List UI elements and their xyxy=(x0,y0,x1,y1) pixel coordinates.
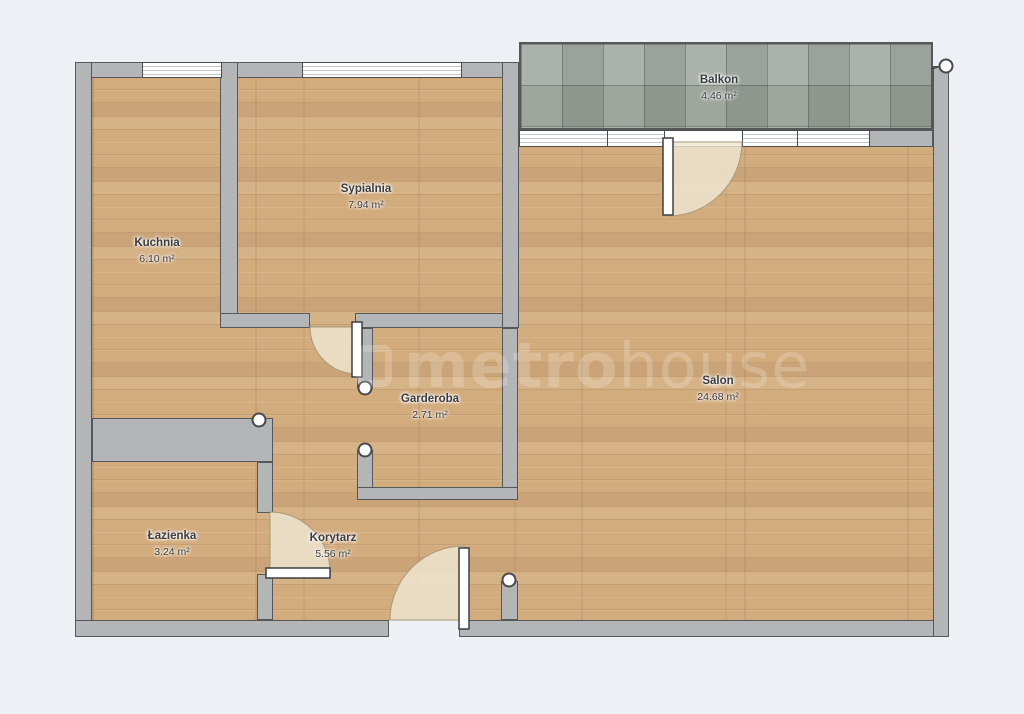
marker-circle-duct xyxy=(253,414,266,427)
door-leaf-entrance xyxy=(459,548,469,629)
room-label-kuchnia: Kuchnia 6.10 m² xyxy=(134,236,179,266)
marker-circle-wardrobe-bottom xyxy=(359,444,372,457)
room-label-lazienka: Łazienka 3.24 m² xyxy=(148,529,197,559)
room-label-garderoba: Garderoba 2.71 m² xyxy=(401,392,459,422)
door-leaf-bedroom xyxy=(352,322,362,377)
door-leaf-balcony xyxy=(663,138,673,215)
room-label-sypialnia: Sypialnia 7.94 m² xyxy=(341,182,392,212)
marker-circle-hallway-stub xyxy=(503,574,516,587)
marker-circle-wardrobe-top xyxy=(359,382,372,395)
floor-plan: Balkon 4.46 m² Sypialnia 7.94 m² Kuchnia… xyxy=(0,0,1024,714)
marker-circle-top-right xyxy=(940,60,953,73)
door-swing-bedroom xyxy=(310,327,357,374)
doors-overlay xyxy=(0,0,1024,714)
room-label-salon: Salon 24.68 m² xyxy=(697,374,738,404)
door-swing-entrance xyxy=(390,546,464,620)
door-leaf-bathroom xyxy=(266,568,330,578)
room-label-korytarz: Korytarz 5.56 m² xyxy=(310,531,357,561)
room-label-balkon: Balkon 4.46 m² xyxy=(700,73,738,103)
door-swing-balcony xyxy=(668,142,742,216)
